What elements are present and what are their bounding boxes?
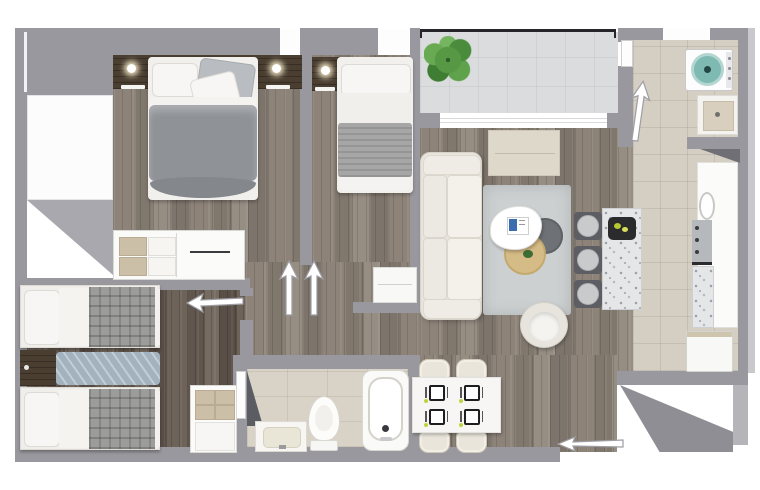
twin-bed [20, 285, 160, 348]
balcony-railing [420, 29, 616, 32]
duvet [149, 105, 257, 181]
wall-balcony-stub-left [410, 113, 440, 128]
bed-edge [155, 391, 160, 447]
plaid-blanket [89, 287, 155, 347]
napkin-dot-icon [424, 399, 428, 403]
armchair [520, 302, 568, 348]
shelf-compartment [215, 405, 235, 420]
burner-icon [695, 226, 699, 230]
nightstand-ledge [315, 87, 335, 91]
toilet-tank [310, 440, 338, 451]
closet-shadow-diagonal [27, 200, 113, 275]
pillow [24, 392, 60, 447]
cooktop [692, 220, 712, 264]
wall-bedroom2-bottom [353, 302, 420, 313]
stool-seat [577, 215, 599, 237]
washer-knob [728, 67, 731, 70]
toilet-seat [315, 405, 333, 431]
bar-stool [574, 212, 602, 240]
sofa-armrest [423, 155, 481, 175]
exterior-corner-shadow [620, 385, 733, 452]
bar-stool [574, 246, 602, 274]
magazine-text-line [519, 220, 525, 221]
bar-stool [574, 280, 602, 308]
plaid-blanket [89, 389, 155, 449]
nightstand [312, 57, 340, 91]
washing-machine [685, 49, 733, 91]
duvet-foot-drape [150, 177, 256, 198]
fridge-top-edge [687, 332, 732, 337]
sofa-seat-cushion [447, 175, 482, 238]
nightstand-ledge [121, 85, 145, 89]
place-setting [424, 408, 450, 427]
plant [424, 36, 472, 84]
exterior-corner-column [733, 385, 748, 445]
bedroom3-door-arrow [186, 291, 244, 315]
pillow [341, 64, 411, 96]
tv-cabinet [488, 130, 560, 176]
place-setting [459, 408, 485, 427]
nightstand-ledge [266, 85, 290, 89]
drain-icon [715, 112, 720, 117]
lamp-icon [127, 64, 136, 73]
toilet [306, 396, 342, 452]
bathtub [362, 370, 409, 451]
napkin-dot-icon [424, 423, 428, 427]
breakfast-island [602, 208, 642, 310]
wall-top-b [308, 28, 378, 55]
napkin-dot-icon [459, 423, 463, 427]
shelf-compartment [195, 405, 215, 420]
food-icon [622, 227, 628, 232]
bed-edge [155, 289, 160, 345]
fridge [686, 331, 733, 372]
cabinet-line [495, 153, 555, 154]
dresser-compartment [119, 237, 147, 256]
drain-icon [382, 425, 389, 432]
stool-seat [577, 249, 599, 271]
napkin-dot-icon [459, 399, 463, 403]
washer-knob [728, 57, 731, 60]
laundry-door-leaf [621, 40, 633, 67]
desk-cabinet [373, 267, 417, 303]
tap-icon [279, 445, 286, 449]
kitchen-sink [699, 192, 715, 220]
window [378, 29, 410, 54]
floor-plan [0, 0, 760, 490]
dining-chair [456, 431, 487, 453]
plate-icon [464, 385, 480, 401]
double-bed [148, 57, 258, 200]
shelf-unit [190, 385, 237, 453]
dresser-compartment [119, 257, 147, 276]
sliding-door [440, 113, 607, 128]
plate-icon [429, 409, 445, 425]
dining-chair [419, 431, 450, 453]
magazine-text-line [519, 224, 525, 225]
washer-lid-center [704, 66, 711, 73]
wall-right-highlight [748, 28, 755, 373]
twin-bed [20, 387, 160, 450]
faucet-icon [380, 437, 392, 441]
washer-knob [728, 77, 731, 80]
place-setting [424, 384, 450, 403]
lamp-icon [321, 66, 330, 75]
stool-seat [577, 283, 599, 305]
wall-bathroom-top [233, 355, 420, 369]
shelf-compartment [195, 422, 235, 451]
place-setting [459, 384, 485, 403]
sofa-back-cushion [423, 175, 447, 238]
dresser-drawers [176, 233, 243, 277]
desk-line [378, 284, 412, 285]
bathroom-door-leaf [236, 371, 246, 419]
armchair-seat [529, 312, 560, 341]
pillow [24, 290, 60, 345]
shelf-compartment [215, 390, 235, 405]
bed-runner [56, 352, 160, 385]
master-door-arrow [279, 260, 299, 316]
wall-topleft-block [27, 28, 113, 95]
vanity-sink [255, 421, 307, 452]
sofa [420, 152, 482, 320]
bed-sheet [339, 93, 411, 125]
wall-top-a [113, 28, 280, 55]
sofa-armrest [423, 299, 481, 319]
burner-icon [695, 238, 699, 242]
single-bed [337, 57, 413, 193]
nightstand [20, 350, 56, 386]
closet [27, 95, 113, 200]
lamp-icon [272, 64, 281, 73]
plate-icon [429, 385, 445, 401]
knob-icon [24, 365, 29, 370]
shelf-compartment [195, 390, 215, 405]
drawer-handle [190, 251, 230, 253]
wall-right-outer [738, 28, 748, 373]
sofa-back-cushion [423, 238, 447, 300]
laundry-sink [697, 95, 738, 135]
counter-divider [692, 262, 712, 265]
dresser-compartment [148, 257, 176, 276]
dresser [113, 230, 245, 280]
plate-icon [464, 409, 480, 425]
sofa-seat-cushion [447, 238, 482, 300]
plant-icon [523, 250, 533, 258]
balcony-railing-end [420, 29, 422, 38]
bed-foot-sheet [340, 177, 410, 190]
blanket [338, 123, 412, 177]
dresser-compartment [148, 237, 176, 256]
food-icon [614, 223, 621, 229]
entry-arrow [557, 435, 624, 453]
wall-kitchen-bottom [617, 371, 748, 385]
counter-section [692, 266, 714, 328]
wall-laundry-stub [687, 137, 740, 149]
window [663, 28, 710, 40]
burner-icon [695, 250, 699, 254]
magazine-cover [509, 219, 517, 231]
balcony-railing-end [614, 29, 616, 38]
bedroom2-door-arrow [304, 260, 324, 316]
